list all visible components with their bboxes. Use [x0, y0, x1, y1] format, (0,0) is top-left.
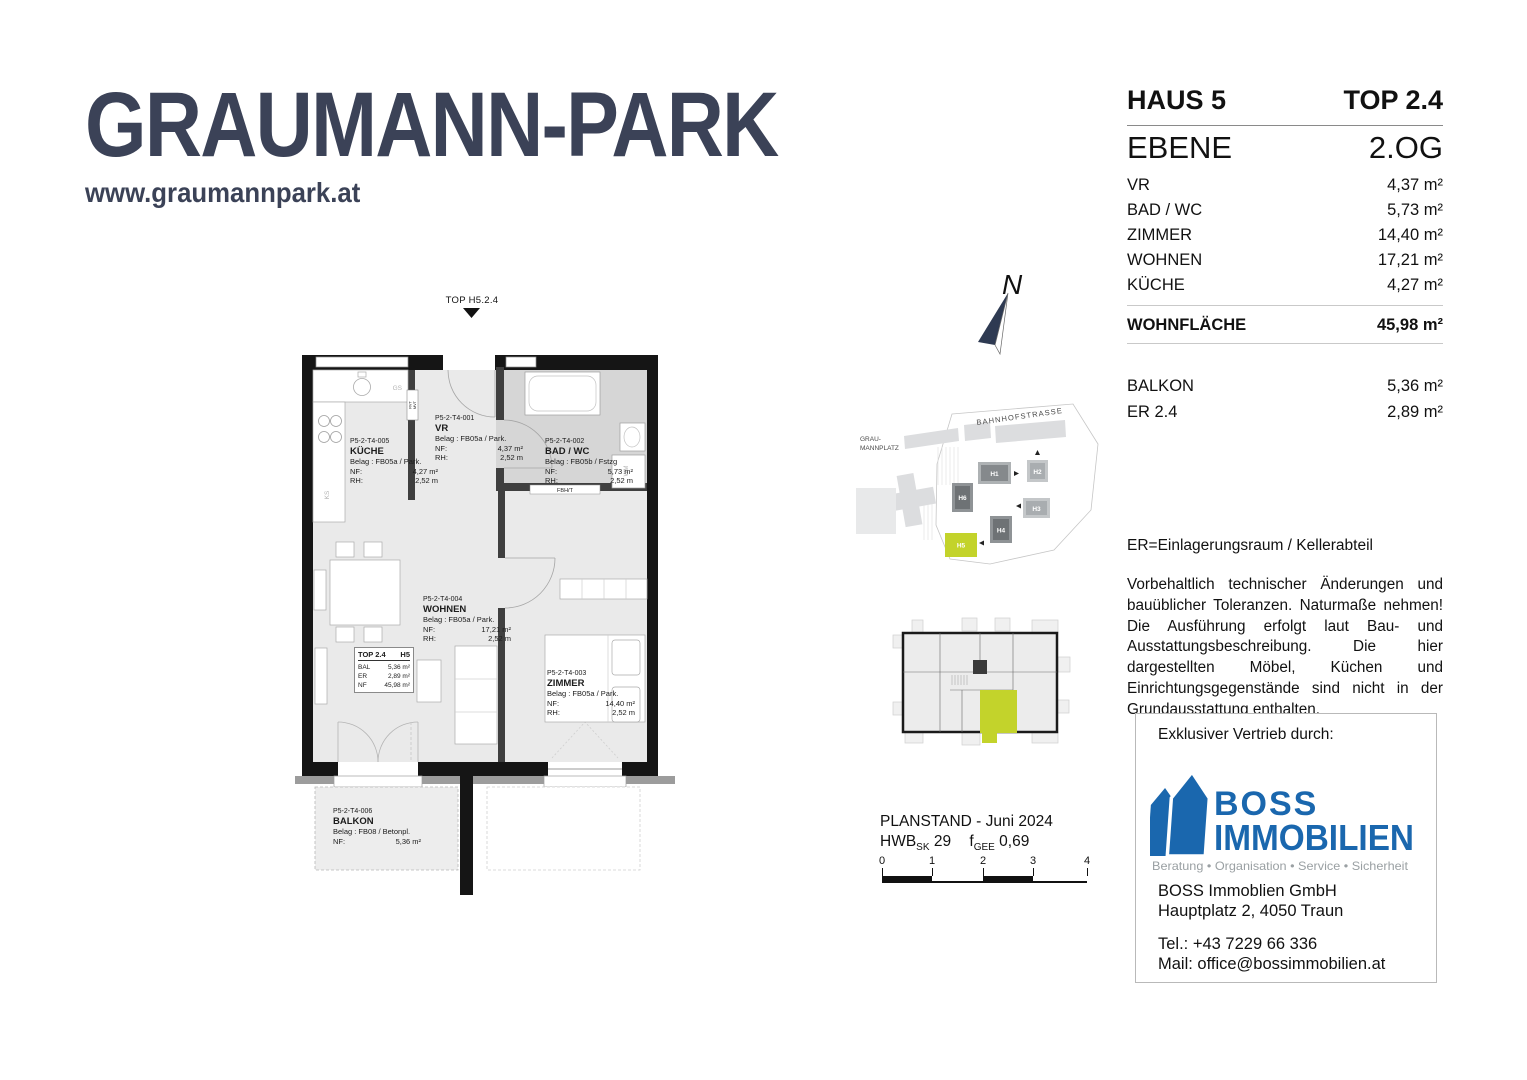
- brand-immobilien: IMMOBILIEN: [1214, 817, 1414, 858]
- svg-text:H6: H6: [958, 495, 967, 502]
- table-row: WOHNEN 17,21 m²: [1127, 248, 1443, 273]
- door-sill: [334, 776, 422, 787]
- room-label-wohnen: P5-2-T4-004 WOHNEN Belag : FB05a / Park.…: [423, 595, 519, 644]
- bath-window: [506, 357, 536, 367]
- building-h2: H2: [1027, 460, 1048, 482]
- street-building: [995, 420, 1066, 443]
- unit-head-row: HAUS 5 TOP 2.4: [1127, 85, 1443, 116]
- plan-meta: PLANSTAND - Juni 2024 HWBSK 29 fGEE 0,69: [880, 812, 1053, 858]
- total-value: 45,98 m²: [1377, 313, 1443, 338]
- site-plan: H1 H2 H3 H4 H6: [840, 392, 1110, 582]
- north-letter: N: [1002, 269, 1023, 300]
- scale-tick: [983, 868, 984, 876]
- room-label-zimmer: P5-2-T4-003 ZIMMER Belag : FB05a / Park.…: [547, 669, 643, 718]
- scale-segment-filled: [882, 876, 932, 883]
- scale-segment-empty: [1033, 881, 1087, 883]
- overview-stair-core: [973, 660, 987, 674]
- balcony-door-opening: [338, 762, 418, 776]
- vendor-company-block: BOSS Immoblien GmbH Hauptplatz 2, 4050 T…: [1158, 881, 1343, 921]
- scale-tick-label: 2: [980, 855, 986, 867]
- hwb-label: HWB: [880, 833, 916, 850]
- room-name: ZIMMER: [1127, 223, 1192, 248]
- scale-tick-label: 1: [929, 855, 935, 867]
- unit-info-panel: HAUS 5 TOP 2.4 EBENE 2.OG VR 4,37 m² BAD…: [1127, 85, 1443, 745]
- bathtub: [525, 372, 600, 415]
- building-h6: H6: [952, 483, 973, 512]
- neighbor-block: [856, 488, 896, 534]
- svg-text:H4: H4: [997, 528, 1006, 535]
- north-arrow-icon: N: [950, 258, 1050, 373]
- extra-name: BALKON: [1127, 373, 1194, 399]
- vendor-company: BOSS Immoblien GmbH: [1158, 881, 1343, 901]
- table-row: ZIMMER 14,40 m²: [1127, 223, 1443, 248]
- room-name: VR: [1127, 173, 1150, 198]
- vendor-address: Hauptplatz 2, 4050 Traun: [1158, 901, 1343, 921]
- svg-text:H1: H1: [990, 471, 999, 478]
- extra-area: 5,36 m²: [1387, 373, 1443, 399]
- building-h1: H1: [978, 462, 1011, 484]
- total-area-row: WOHNFLÄCHE 45,98 m²: [1127, 313, 1443, 338]
- table-row: BAD / WC 5,73 m²: [1127, 198, 1443, 223]
- room-area-table: VR 4,37 m² BAD / WC 5,73 m² ZIMMER 14,40…: [1127, 173, 1443, 298]
- er-note: ER=Einlagerungsraum / Kellerabteil: [1127, 537, 1373, 555]
- balcony-divider-wall: [460, 776, 473, 895]
- disclaimer-text: Vorbehaltlich technischer Änderungen und…: [1127, 575, 1443, 721]
- fridge-label: KS: [324, 490, 331, 499]
- shaft-label-mvt: MVT: [413, 400, 417, 409]
- boss-immobilien-logo: BOSS IMMOBILIEN Beratung • Organisation …: [1150, 760, 1420, 875]
- unit-box-haus: H5: [400, 650, 410, 659]
- fbht-label: FBH/T: [557, 488, 574, 494]
- entrance-marker-icon: [463, 308, 480, 318]
- scale-tick-label: 0: [879, 855, 885, 867]
- building-h5-highlight: H5: [945, 533, 977, 557]
- apartment-floorplan: GS KS RVT MVT FBH/T: [290, 290, 680, 910]
- dishwasher-label: GS: [393, 385, 403, 392]
- street-building: [904, 428, 959, 449]
- table-row: BALKON 5,36 m²: [1127, 373, 1443, 399]
- room-label-kueche: P5-2-T4-005 KÜCHE Belag : FB05a / Park. …: [350, 437, 446, 486]
- overview-unit-highlight: [980, 690, 1017, 743]
- wardrobe: [560, 579, 647, 599]
- window-sill: [544, 776, 626, 787]
- fgee-sub: GEE: [974, 842, 995, 853]
- haus-label: HAUS 5: [1127, 85, 1226, 116]
- brand-header: GRAUMANN-PARK www.graumannpark.at: [85, 82, 890, 209]
- floorplan-sheet: GRAUMANN-PARK www.graumannpark.at HAUS 5…: [0, 0, 1527, 1080]
- room-label-bad: P5-2-T4-002 BAD / WC Belag : FB05b / Fst…: [545, 437, 641, 486]
- platz-label-line1: GRAU-: [860, 436, 881, 443]
- room-area: 4,37 m²: [1387, 173, 1443, 198]
- total-label: WOHNFLÄCHE: [1127, 313, 1246, 338]
- scale-tick-label: 3: [1030, 855, 1036, 867]
- divider: [1127, 125, 1443, 126]
- building-h4: H4: [990, 516, 1012, 543]
- extra-name: ER 2.4: [1127, 399, 1177, 425]
- hwb-sub: SK: [916, 842, 929, 853]
- room-name: WOHNEN: [1127, 248, 1202, 273]
- kitchen-window: [316, 357, 408, 367]
- floor-overview: [890, 615, 1090, 760]
- room-area: 17,21 m²: [1378, 248, 1443, 273]
- planstand-line: PLANSTAND - Juni 2024: [880, 812, 1053, 832]
- brand-title: GRAUMANN-PARK: [85, 82, 778, 169]
- table-row: KÜCHE 4,27 m²: [1127, 273, 1443, 298]
- scale-tick: [1033, 868, 1034, 876]
- vendor-tel: Tel.: +43 7229 66 336: [1158, 934, 1385, 954]
- ebene-label: EBENE: [1127, 130, 1232, 166]
- room-name: BAD / WC: [1127, 198, 1202, 223]
- building-h3: H3: [1023, 498, 1050, 518]
- svg-text:H5: H5: [957, 543, 966, 550]
- top-label: TOP 2.4: [1343, 85, 1443, 116]
- room-name: KÜCHE: [1127, 273, 1185, 298]
- scale-bar: 0 1 2 3 4: [878, 855, 1096, 887]
- vendor-heading: Exklusiver Vertrieb durch:: [1158, 726, 1334, 744]
- entrance-marker-label: TOP H5.2.4: [430, 295, 514, 306]
- scale-tick-label: 4: [1084, 855, 1090, 867]
- brand-tagline: Beratung • Organisation • Service • Sich…: [1152, 859, 1409, 873]
- room-label-vr: P5-2-T4-001 VR Belag : FB05a / Park. NF:…: [435, 414, 531, 463]
- room-area: 4,27 m²: [1387, 273, 1443, 298]
- fgee-value: 0,69: [999, 833, 1029, 850]
- table-row: VR 4,37 m²: [1127, 173, 1443, 198]
- scale-tick: [1087, 868, 1088, 876]
- extra-area-table: BALKON 5,36 m² ER 2.4 2,89 m²: [1127, 373, 1443, 425]
- scale-tick: [932, 868, 933, 876]
- scale-segment-filled: [983, 876, 1033, 883]
- neighbor-balcony: [487, 787, 640, 870]
- divider: [1127, 305, 1443, 306]
- extra-area: 2,89 m²: [1387, 399, 1443, 425]
- svg-text:H2: H2: [1033, 469, 1042, 476]
- boss-houses-icon: [1150, 772, 1211, 856]
- brand-website: www.graumannpark.at: [85, 177, 826, 209]
- divider: [1127, 343, 1443, 344]
- room-area: 14,40 m²: [1378, 223, 1443, 248]
- room-area: 5,73 m²: [1387, 198, 1443, 223]
- hwb-value: 29: [934, 833, 951, 850]
- vendor-mail: Mail: office@bossimmobilien.at: [1158, 954, 1385, 974]
- ebene-row: EBENE 2.OG: [1127, 130, 1443, 166]
- platz-label-line2: MANNPLATZ: [860, 445, 899, 452]
- scale-segment-empty: [932, 881, 983, 883]
- entrance-opening: [443, 355, 495, 370]
- svg-text:H3: H3: [1032, 506, 1041, 513]
- unit-summary-box: TOP 2.4 H5 BAL5,36 m² ER2,89 m² NF45,98 …: [354, 647, 414, 693]
- unit-box-title: TOP 2.4: [358, 650, 386, 659]
- shaft-label-rvt: RVT: [409, 401, 413, 409]
- scale-tick: [882, 868, 883, 876]
- vendor-box: Exklusiver Vertrieb durch: BOSS IMMOBILI…: [1135, 713, 1437, 983]
- room-label-balkon: P5-2-T4-006 BALKON Belag : FB08 / Betonp…: [333, 807, 429, 846]
- vendor-contact-block: Tel.: +43 7229 66 336 Mail: office@bossi…: [1158, 934, 1385, 974]
- table-row: ER 2.4 2,89 m²: [1127, 399, 1443, 425]
- ebene-value: 2.OG: [1369, 130, 1443, 166]
